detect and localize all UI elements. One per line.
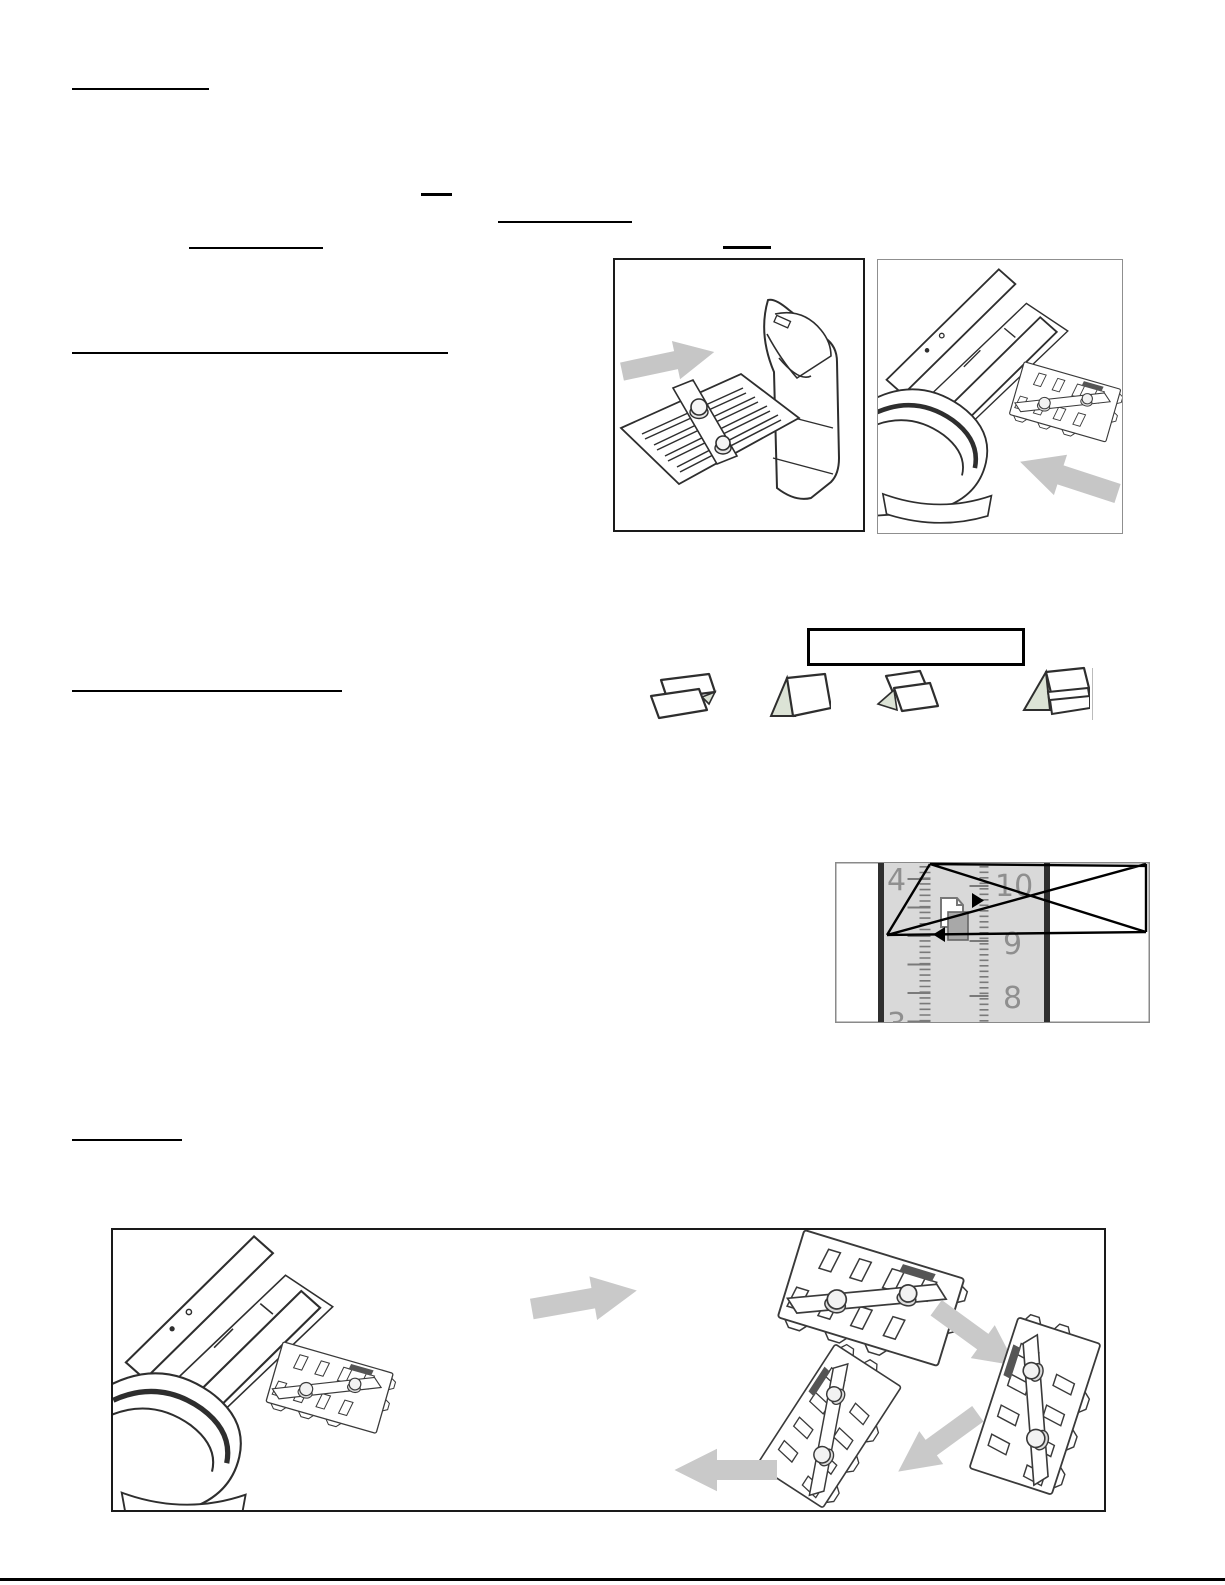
manual-page: 4 3 10 9 8 bbox=[0, 0, 1225, 1585]
fold-type-label-box bbox=[807, 628, 1025, 666]
ruler-right-edge-bar bbox=[1044, 863, 1050, 1022]
letter-fold-icon bbox=[866, 668, 950, 722]
underline-heading-4 bbox=[72, 1139, 182, 1141]
underline-inline-bold-1 bbox=[421, 193, 452, 196]
machine-illustration bbox=[113, 1236, 398, 1510]
svg-text:4: 4 bbox=[887, 863, 906, 898]
arrow-left-icon bbox=[675, 1449, 778, 1492]
underline-inline-2 bbox=[189, 247, 323, 249]
arrow-down-left-icon bbox=[886, 1397, 990, 1488]
clipart-edge-line bbox=[1092, 668, 1093, 720]
outfeed-tray-illustration bbox=[621, 374, 799, 484]
figure-outfeed-tray bbox=[613, 258, 865, 532]
underline-heading-3 bbox=[72, 690, 342, 692]
figure-fold-plate-removal bbox=[877, 259, 1123, 534]
arrow-down-left-icon bbox=[1014, 442, 1122, 514]
double-parallel-fold-icon bbox=[1020, 666, 1090, 722]
svg-text:3: 3 bbox=[887, 1007, 906, 1023]
half-fold-icon bbox=[763, 672, 831, 722]
underline-heading-2 bbox=[72, 352, 448, 354]
underline-heading-1 bbox=[72, 88, 209, 90]
fold-plate-bottom bbox=[757, 1339, 910, 1510]
arrow-right-icon bbox=[528, 1269, 641, 1331]
arrow-right-icon bbox=[618, 333, 718, 391]
underline-inline-1 bbox=[498, 221, 632, 223]
svg-text:9: 9 bbox=[1003, 927, 1022, 962]
ruler-detail-figure: 4 3 10 9 8 bbox=[835, 862, 1150, 1023]
figure-plate-rotation-panel bbox=[111, 1228, 1106, 1512]
z-fold-icon bbox=[645, 672, 717, 722]
svg-text:8: 8 bbox=[1003, 981, 1022, 1016]
underline-inline-bold-2 bbox=[723, 246, 771, 249]
ruler-left-edge-bar bbox=[878, 863, 884, 1022]
footer-rule bbox=[0, 1578, 1225, 1581]
